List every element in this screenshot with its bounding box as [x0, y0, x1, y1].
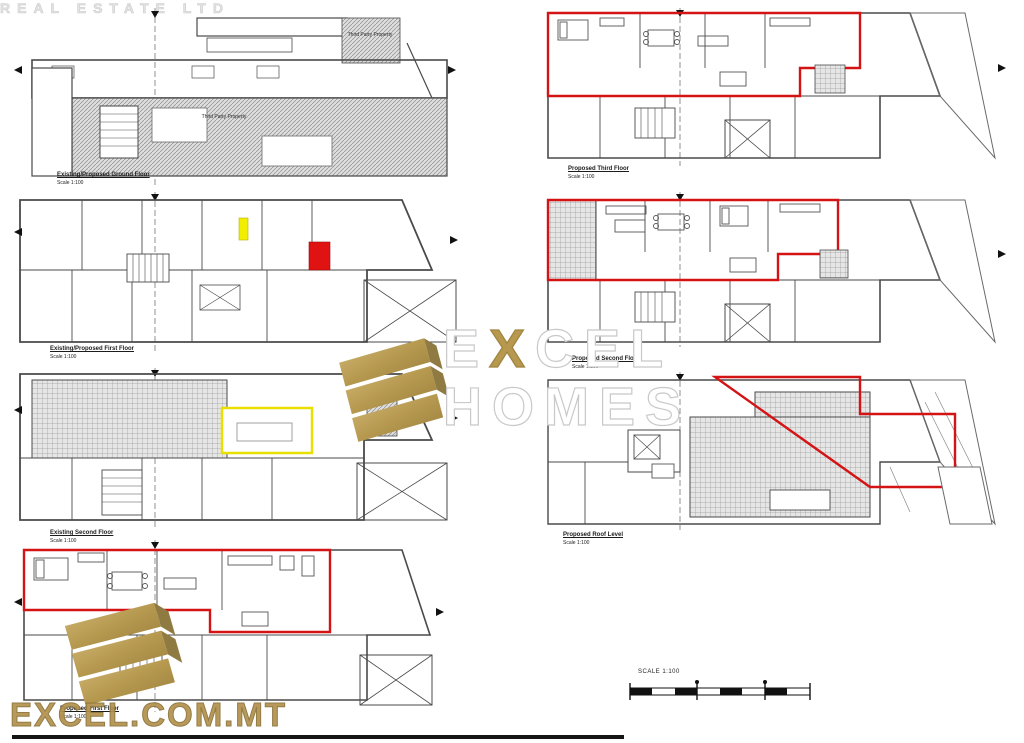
plan-title-roof-proposed: Proposed Roof Level Scale 1:100 — [563, 532, 623, 546]
watermark-gold-x: X — [489, 319, 535, 379]
scale-bar-label: SCALE 1:100 — [638, 669, 680, 675]
excel-homes-logo — [332, 335, 453, 458]
floor-plan-ground: Third Party Property Third Party Propert… — [12, 8, 460, 186]
footer-url: EXCEL.COM.MT — [10, 696, 287, 734]
third-party-property-label: Third Party Property — [340, 32, 400, 38]
floor-plan-first-drawing — [12, 192, 460, 352]
scale-bar — [625, 678, 815, 702]
floor-plan-third-proposed — [540, 8, 1010, 166]
third-party-property-label: Third Party Property — [194, 114, 254, 120]
plan-title-ground: Existing/Proposed Ground Floor Scale 1:1… — [57, 172, 150, 186]
terrace-hatch — [548, 200, 596, 280]
plan-title-third-proposed: Proposed Third Floor Scale 1:100 — [568, 166, 629, 180]
proposed-apartment-outline — [548, 13, 860, 96]
excel-footer-logo-mark — [56, 600, 190, 709]
excel-homes-logo-mark — [332, 335, 453, 453]
floor-plan-first — [12, 192, 460, 352]
plan-title-first: Existing/Proposed First Floor Scale 1:10… — [50, 346, 134, 360]
sheet-border-line — [12, 735, 624, 739]
demolition-outline — [222, 408, 312, 453]
watermark-homes: HOMES — [443, 376, 691, 438]
watermark-excel: EXCEL — [443, 318, 673, 380]
demolition-highlight — [239, 218, 248, 240]
scale-bar-drawing — [625, 678, 815, 702]
floor-plan-third-proposed-drawing — [540, 8, 1010, 166]
plan-sheet: Third Party Property Third Party Propert… — [0, 0, 1024, 743]
new-construction-highlight — [309, 242, 330, 270]
